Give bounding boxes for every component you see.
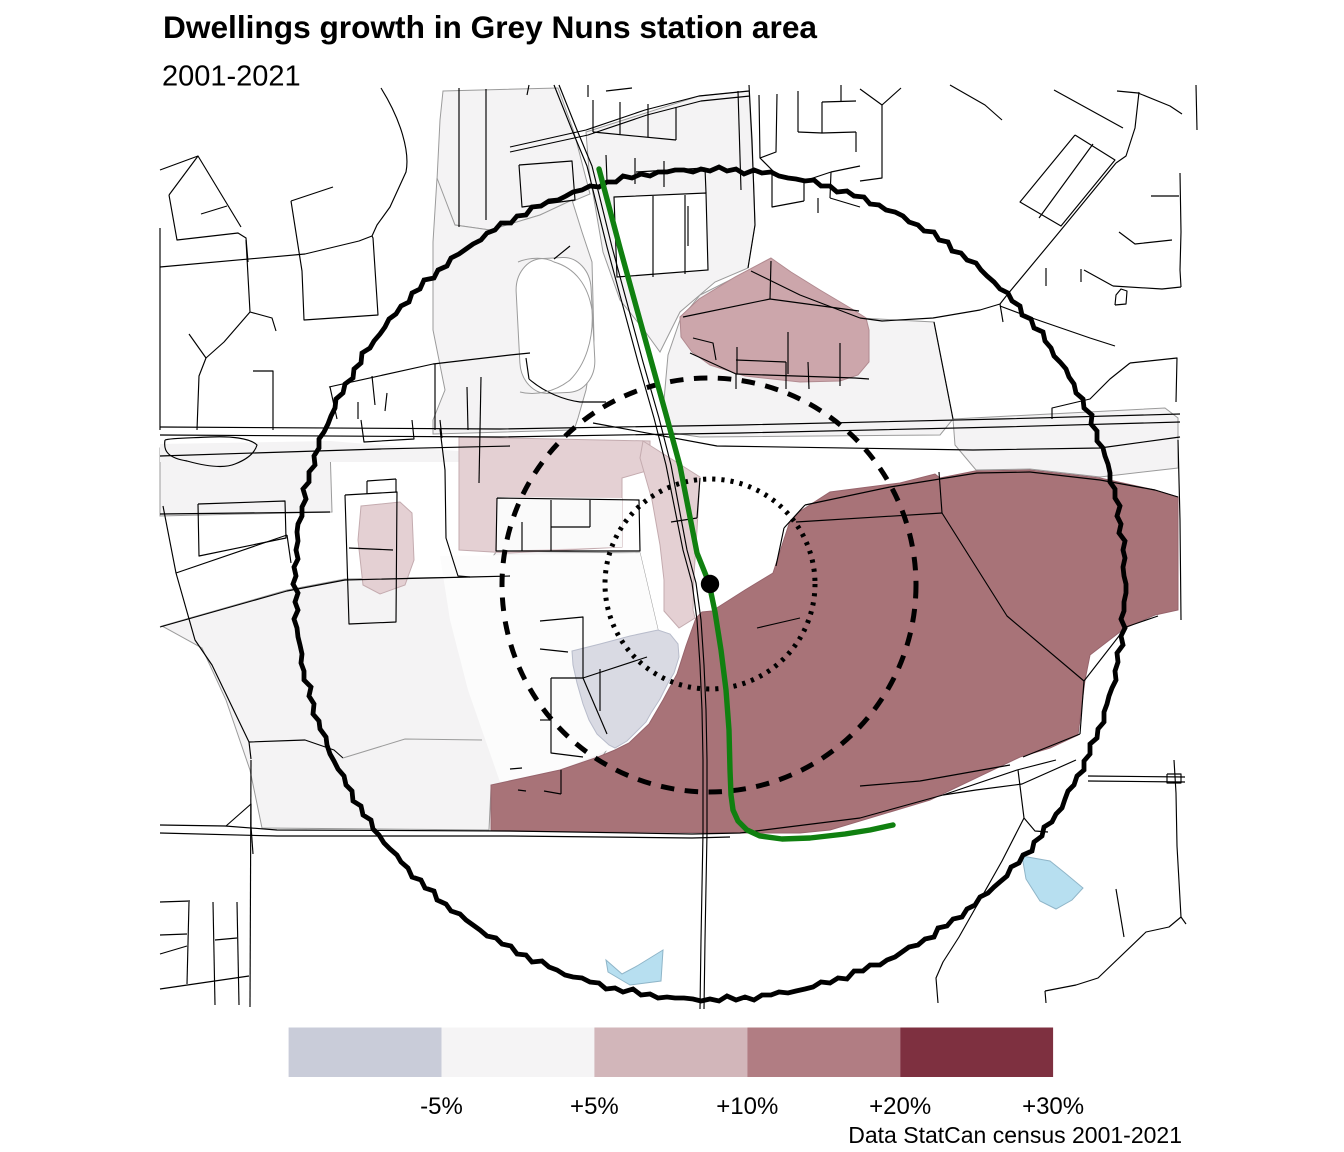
svg-text:+20%: +20% xyxy=(869,1093,931,1120)
svg-text:+5%: +5% xyxy=(570,1093,619,1120)
svg-text:Data StatCan census 2001-2021: Data StatCan census 2001-2021 xyxy=(848,1122,1182,1148)
svg-text:2001-2021: 2001-2021 xyxy=(162,61,301,93)
svg-text:+30%: +30% xyxy=(1022,1093,1084,1120)
svg-text:-5%: -5% xyxy=(420,1093,463,1120)
svg-text:+10%: +10% xyxy=(716,1093,778,1120)
svg-text:Dwellings growth in Grey Nuns: Dwellings growth in Grey Nuns station ar… xyxy=(163,9,817,45)
